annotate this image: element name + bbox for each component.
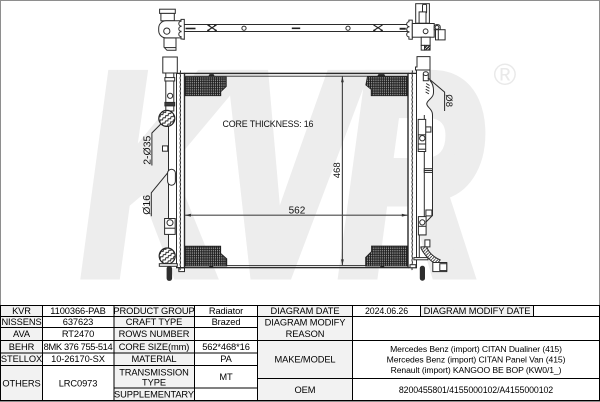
svg-text:DIAGRAM MODIFY: DIAGRAM MODIFY [265,318,346,328]
svg-text:562: 562 [289,206,306,217]
svg-text:TYPE: TYPE [142,378,166,388]
svg-text:AVA: AVA [13,329,31,339]
svg-text:DIAGRAM DATE: DIAGRAM DATE [271,306,340,316]
svg-text:MAKE/MODEL: MAKE/MODEL [275,355,336,365]
svg-text:LRC0973: LRC0973 [59,378,98,388]
svg-text:2024.06.26: 2024.06.26 [365,306,408,316]
svg-text:1100366-PAB: 1100366-PAB [50,306,105,316]
svg-text:MT: MT [219,372,233,382]
svg-text:DIAGRAM MODIFY DATE: DIAGRAM MODIFY DATE [424,306,531,316]
svg-text:Ø8: Ø8 [443,94,454,107]
svg-text:NISSENS: NISSENS [1,317,41,327]
svg-text:Mercedes Benz (import) CITAN P: Mercedes Benz (import) CITAN Panel Van (… [387,355,566,365]
svg-text:SUPPLEMENTARY: SUPPLEMENTARY [114,390,194,400]
svg-text:562*468*16: 562*468*16 [202,342,250,352]
svg-text:BEHR: BEHR [9,342,35,352]
svg-text:STELLOX: STELLOX [1,354,42,364]
svg-text:468: 468 [332,162,343,178]
svg-text:®: ® [494,57,517,92]
svg-text:8200455801/4155000102/A4155000: 8200455801/4155000102/A4155000102 [399,385,553,395]
svg-text:CRAFT TYPE: CRAFT TYPE [126,317,183,327]
svg-text:KVR: KVR [12,306,31,316]
svg-text:Renault (import) KANGOO BE BOP: Renault (import) KANGOO BE BOP (KW0/1_) [391,365,562,375]
svg-text:OTHERS: OTHERS [2,378,40,388]
svg-text:Radiator: Radiator [209,306,243,316]
svg-text:637623: 637623 [63,317,93,327]
svg-text:Mercedes Benz (import) CITAN D: Mercedes Benz (import) CITAN Dualiner (4… [390,344,562,354]
svg-text:PA: PA [220,354,232,364]
svg-text:CORE SIZE(mm): CORE SIZE(mm) [119,342,190,352]
svg-text:REASON: REASON [286,329,325,339]
svg-text:10-26170-SX: 10-26170-SX [51,354,105,364]
svg-text:RT2470: RT2470 [62,329,94,339]
svg-text:8MK 376 755-514: 8MK 376 755-514 [44,342,113,352]
svg-text:CORE THICKNESS: 16: CORE THICKNESS: 16 [223,119,314,129]
svg-text:TRANSMISSION: TRANSMISSION [119,368,189,378]
svg-text:2-Ø35: 2-Ø35 [142,135,154,164]
svg-text:Ø16: Ø16 [141,195,153,215]
svg-text:Brazed: Brazed [212,317,241,327]
svg-text:PRODUCT GROUP: PRODUCT GROUP [113,306,194,316]
svg-text:MATERIAL: MATERIAL [131,354,176,364]
svg-text:ROWS NUMBER: ROWS NUMBER [119,329,190,339]
svg-text:OEM: OEM [295,385,316,395]
